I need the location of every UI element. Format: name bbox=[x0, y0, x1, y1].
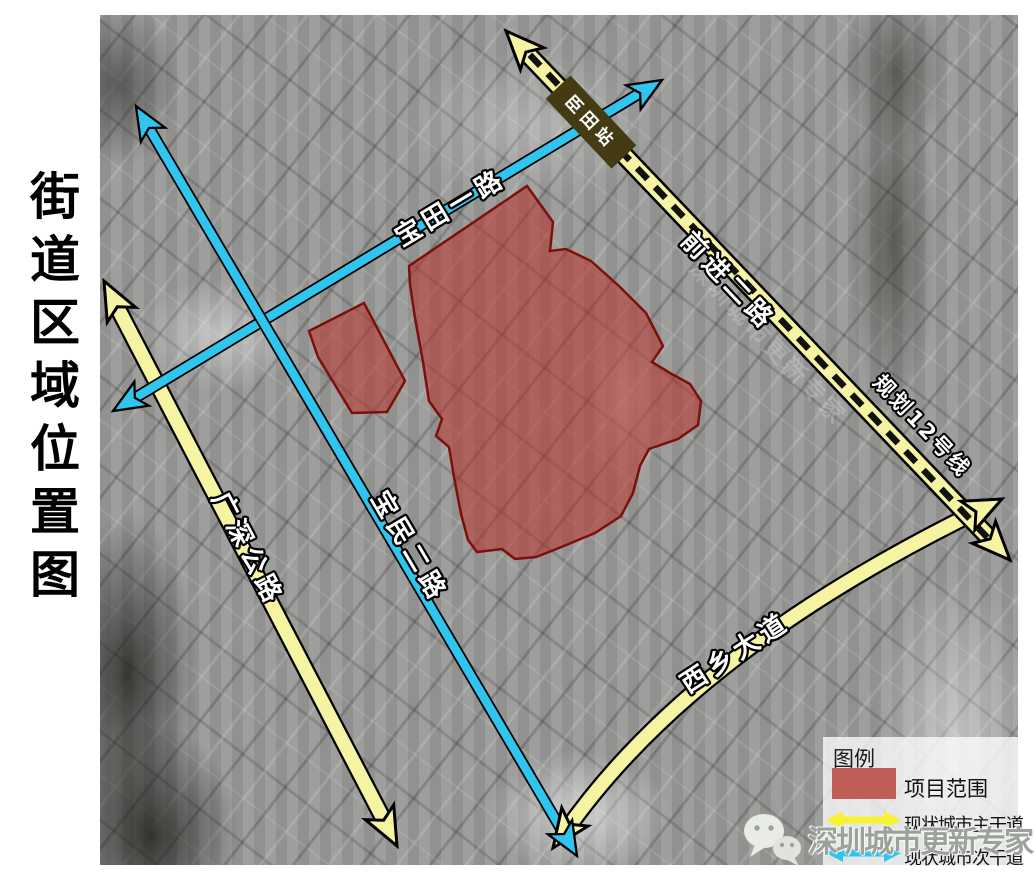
project-area-small bbox=[309, 303, 405, 413]
metro-station: 臣田站 bbox=[546, 75, 637, 168]
label-guangshen-gonglu: 广深公路 bbox=[205, 487, 290, 611]
legend-project-area-swatch bbox=[832, 768, 896, 799]
wechat-icon bbox=[742, 810, 804, 868]
legend-item-label: 项目范围 bbox=[904, 773, 988, 803]
watermark-text: 深圳城市更新专家 bbox=[808, 817, 1032, 861]
label-xixiang-dadao: 西乡大道 bbox=[675, 606, 796, 700]
label-baomin-erlu: 宝民二路 bbox=[364, 485, 454, 608]
watermark: 深圳城市更新专家 bbox=[742, 810, 1032, 868]
page-title: 街道区域位置图 bbox=[26, 170, 76, 650]
page: 街道区域位置图 bbox=[0, 0, 1036, 883]
project-area-main bbox=[409, 186, 701, 559]
